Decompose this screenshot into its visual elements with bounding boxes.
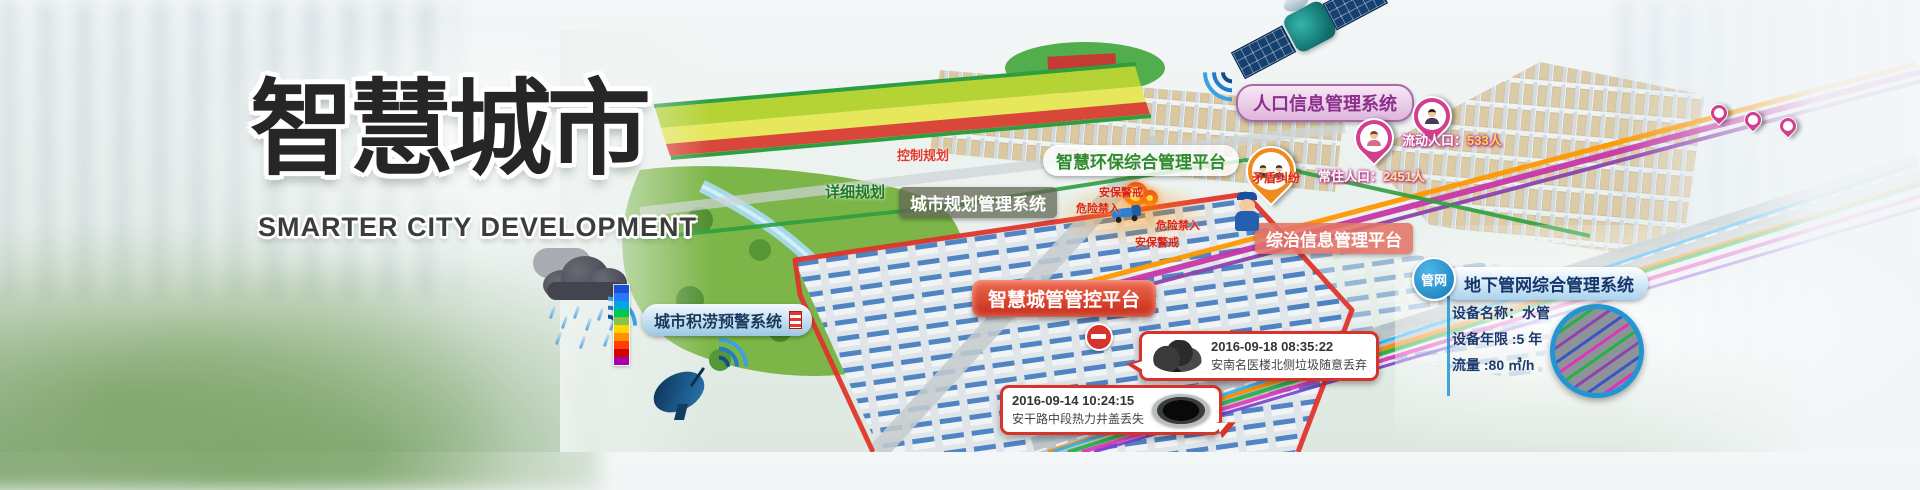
warning-alert-bottom: 安保警戒 <box>1135 234 1179 250</box>
zone-control-planning: 控制规划 <box>897 145 949 164</box>
man-avatar <box>1424 109 1440 124</box>
pipeline-info: 设备名称：水管 设备年限 :5 年 流量 :80 ㎥/h <box>1452 300 1550 378</box>
resident-population-text: 常住人口：2451人 <box>1318 166 1425 185</box>
flood-gauge-icon <box>789 311 802 329</box>
resident-population-value: 2451人 <box>1383 169 1425 184</box>
event-time: 2016-09-18 08:35:22 <box>1211 339 1367 354</box>
woman-avatar <box>1366 131 1382 146</box>
warning-alert-top: 安保警戒 <box>1099 184 1143 200</box>
page-subtitle: SMARTER CITY DEVELOPMENT <box>258 212 697 243</box>
rainfall-legend <box>613 284 630 366</box>
pipeline-device-name: 设备名称：水管 <box>1452 300 1550 326</box>
event-callout-garbage[interactable]: 2016-09-18 08:35:22 安南名医楼北侧垃圾随意丢弃 <box>1139 331 1379 381</box>
label-pipeline-system[interactable]: 地下管网综合管理系统 <box>1444 267 1648 300</box>
warning-danger-right: 危险禁入 <box>1156 217 1200 233</box>
label-waterlogging-system[interactable]: 城市积涝预警系统 <box>642 304 812 336</box>
waterlogging-label-text: 城市积涝预警系统 <box>654 308 782 332</box>
label-population-system[interactable]: 人口信息管理系统 <box>1236 84 1414 122</box>
pipeline-leader-line <box>1447 296 1450 396</box>
pipe-magnifier <box>1550 304 1644 398</box>
zone-detailed-planning: 详细规划 <box>825 181 885 202</box>
garbage-photo <box>1151 340 1203 372</box>
label-planning-system[interactable]: 城市规划管理系统 <box>899 187 1057 218</box>
event-text: 2016-09-18 08:35:22 安南名医楼北侧垃圾随意丢弃 <box>1211 339 1367 373</box>
police-officer-icon <box>1234 192 1260 232</box>
dispute-text: 矛盾纠纷 <box>1252 169 1300 186</box>
satellite-dish-icon <box>650 366 720 422</box>
event-desc: 安干路中段热力井盖丢失 <box>1012 410 1144 427</box>
floating-population-text: 流动人口：533人 <box>1402 130 1502 149</box>
manhole-photo <box>1152 394 1210 427</box>
floating-population-value: 533人 <box>1467 133 1502 148</box>
pipeline-device-age: 设备年限 :5 年 <box>1452 326 1550 352</box>
label-governance-platform[interactable]: 综治信息管理平台 <box>1255 223 1413 254</box>
page-title: 智慧城市 <box>250 44 646 195</box>
no-entry-sign-icon <box>1085 323 1113 351</box>
event-time: 2016-09-14 10:24:15 <box>1012 393 1144 408</box>
label-environment-platform[interactable]: 智慧环保综合管理平台 <box>1043 145 1239 176</box>
event-text: 2016-09-14 10:24:15 安干路中段热力井盖丢失 <box>1012 393 1144 427</box>
pipeline-flow: 流量 :80 ㎥/h <box>1452 352 1550 378</box>
pipeline-badge[interactable]: 管网 <box>1412 257 1456 301</box>
warning-danger-left: 危险禁入 <box>1076 200 1120 216</box>
label-city-management-platform[interactable]: 智慧城管管控平台 <box>972 280 1156 317</box>
event-desc: 安南名医楼北侧垃圾随意丢弃 <box>1211 356 1367 373</box>
event-callout-manhole[interactable]: 2016-09-14 10:24:15 安干路中段热力井盖丢失 <box>1000 385 1222 435</box>
